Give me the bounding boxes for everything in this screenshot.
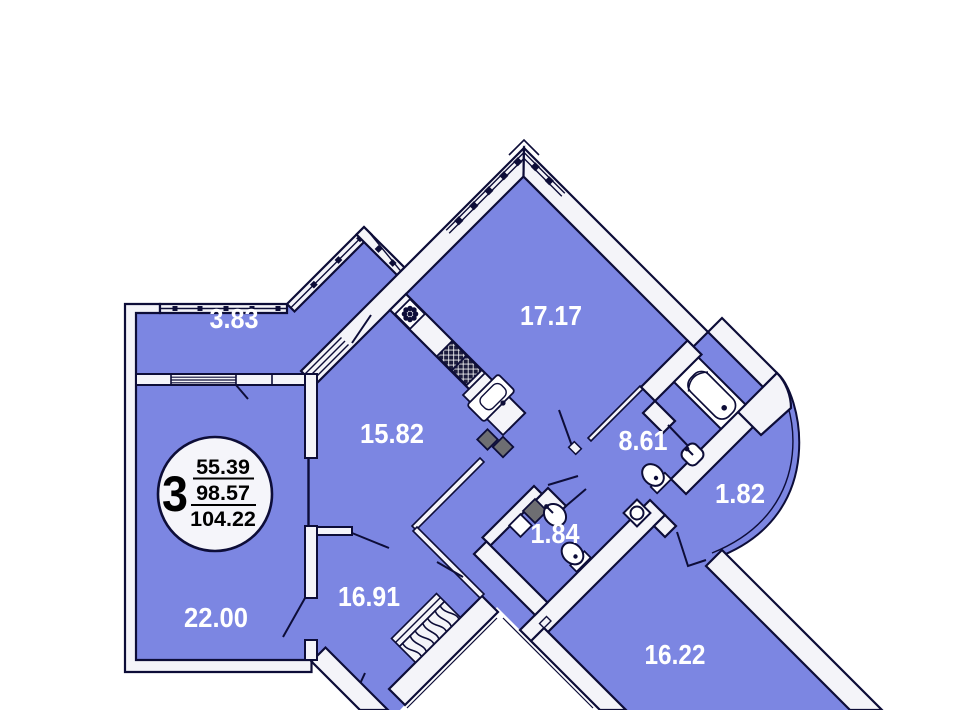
svg-text:55.39: 55.39: [196, 455, 250, 479]
svg-text:17.17: 17.17: [520, 300, 582, 331]
svg-text:3: 3: [162, 466, 188, 522]
svg-text:1.82: 1.82: [715, 478, 765, 509]
svg-text:8.61: 8.61: [619, 425, 668, 456]
svg-text:1.84: 1.84: [531, 518, 580, 549]
svg-text:22.00: 22.00: [184, 602, 248, 633]
svg-text:16.91: 16.91: [338, 581, 400, 612]
svg-text:3.83: 3.83: [210, 303, 259, 334]
svg-text:15.82: 15.82: [360, 418, 424, 449]
svg-text:104.22: 104.22: [190, 507, 256, 531]
svg-text:16.22: 16.22: [645, 639, 706, 670]
svg-text:98.57: 98.57: [196, 481, 250, 505]
